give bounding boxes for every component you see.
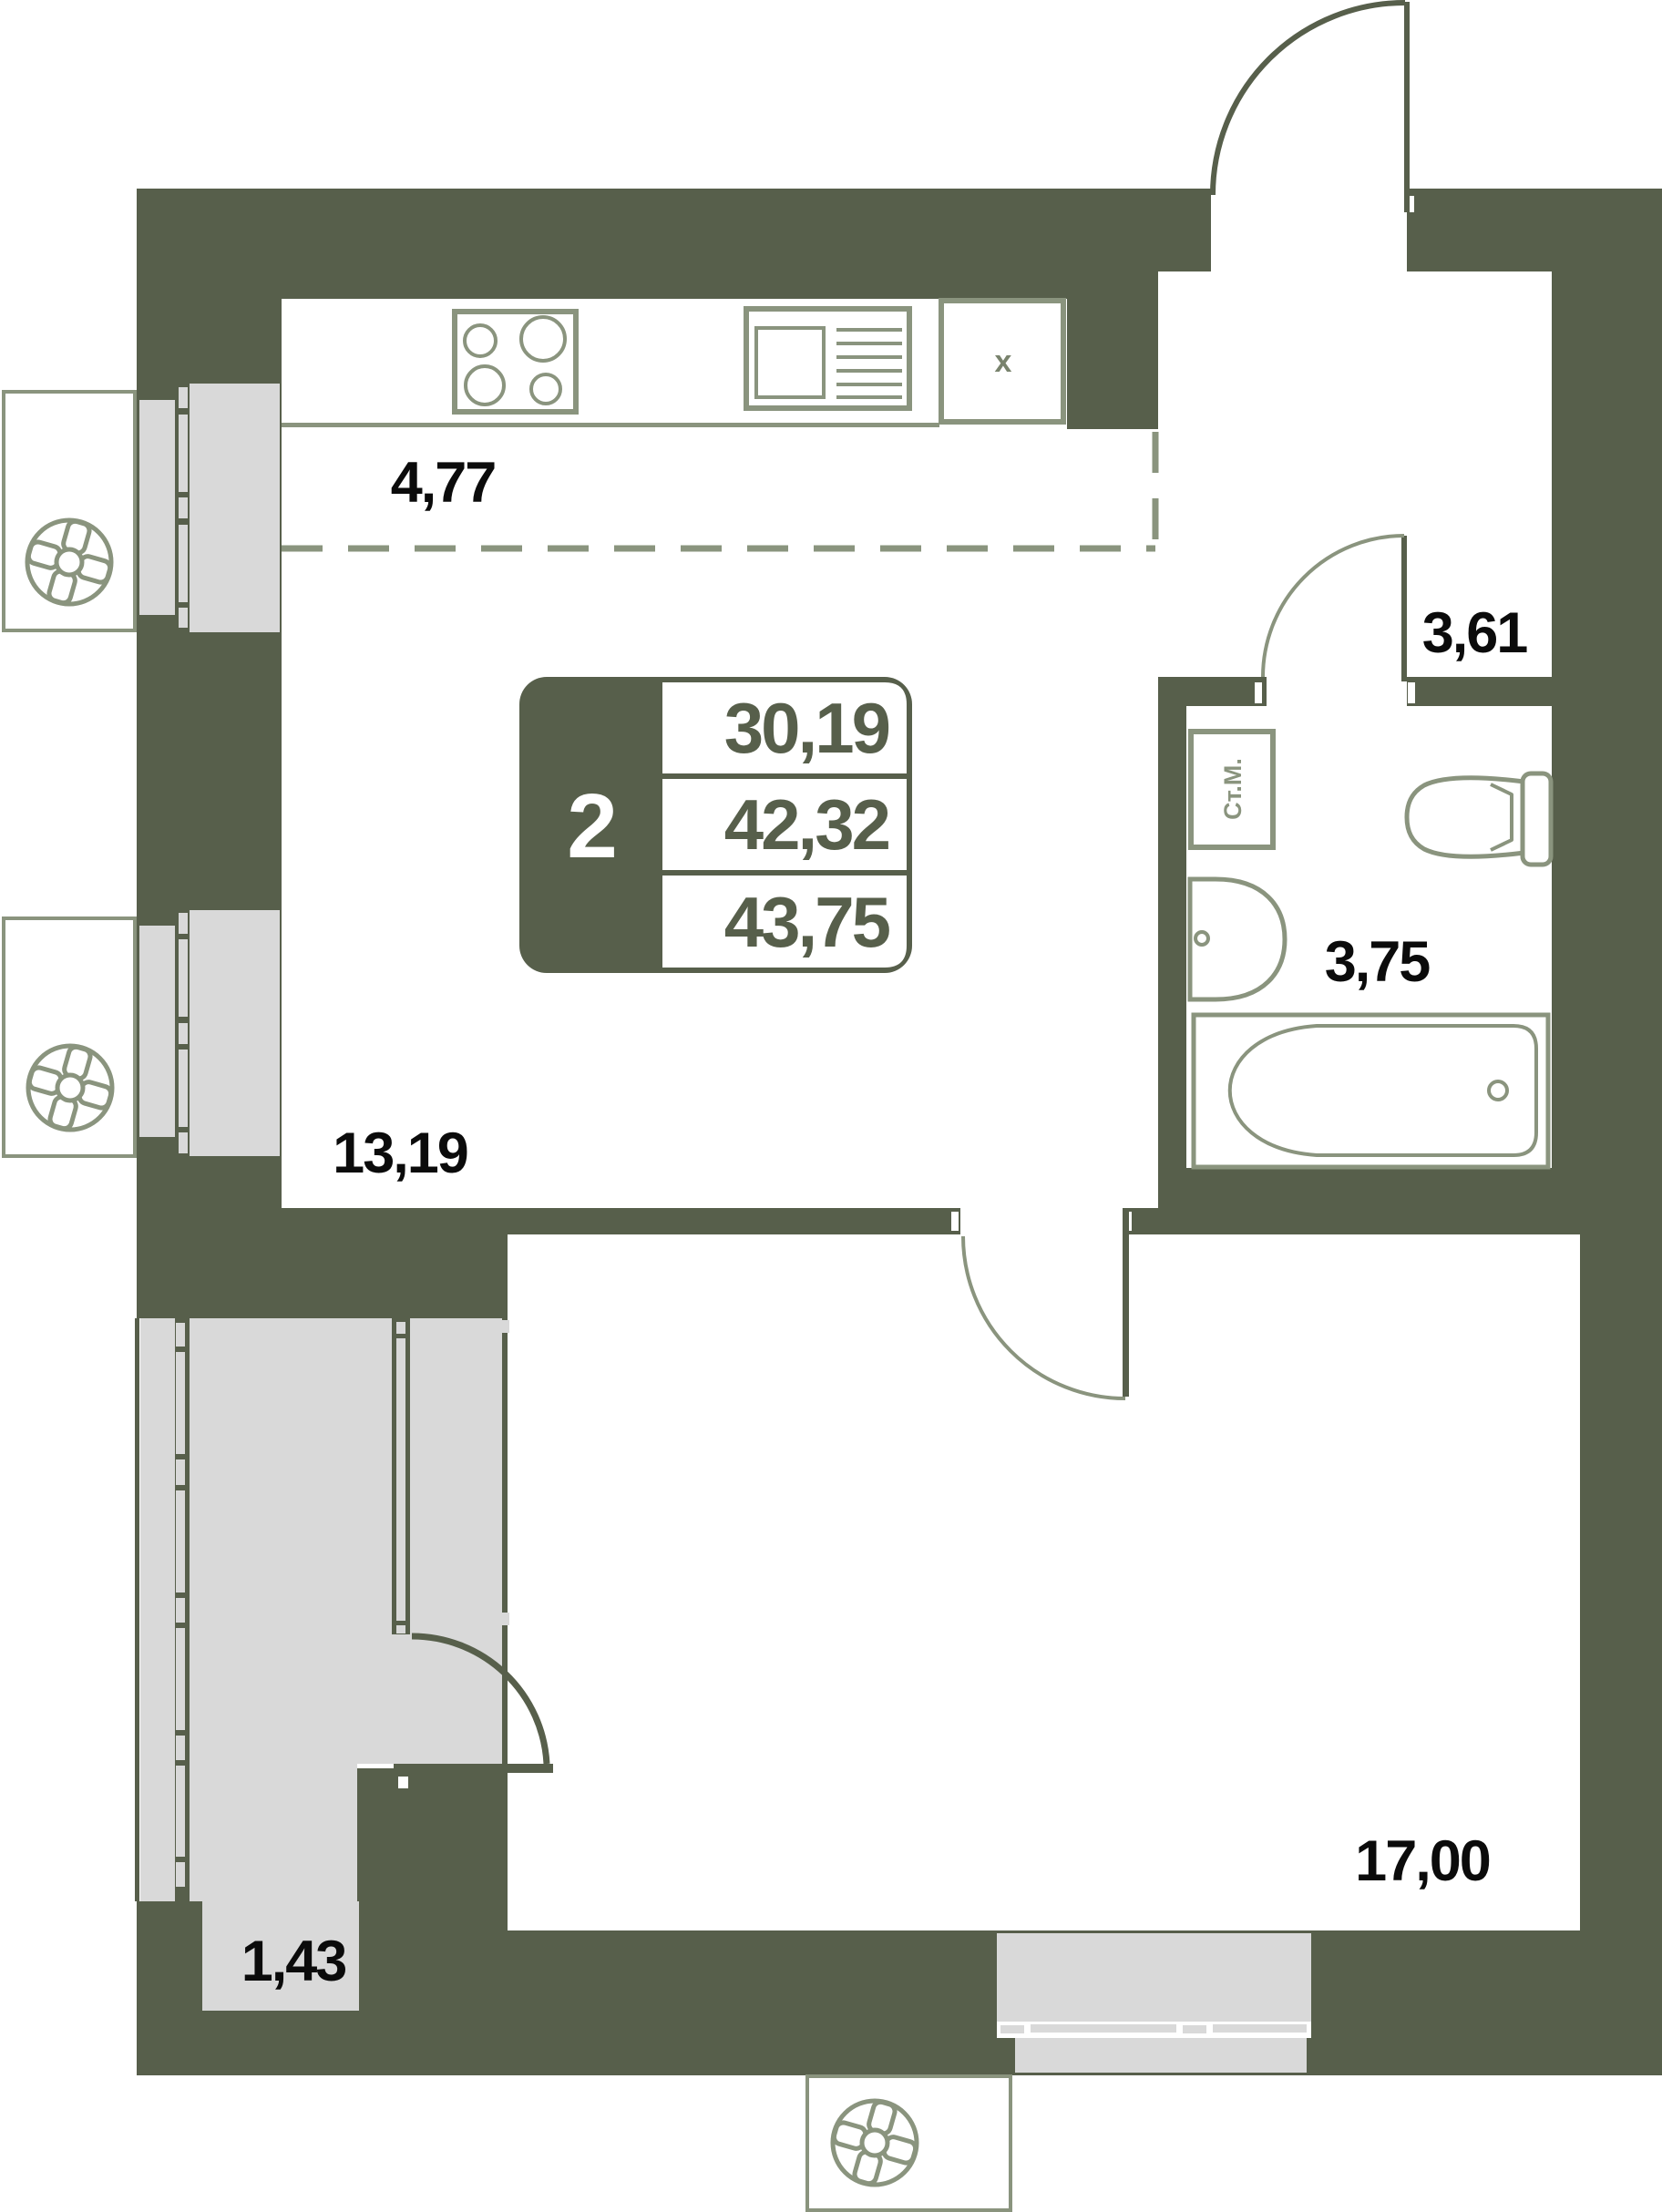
svg-text:2: 2 — [567, 775, 618, 877]
svg-text:43,75: 43,75 — [724, 882, 890, 962]
svg-text:13,19: 13,19 — [333, 1121, 467, 1185]
svg-text:17,00: 17,00 — [1355, 1829, 1490, 1893]
svg-text:3,75: 3,75 — [1325, 930, 1431, 994]
svg-text:30,19: 30,19 — [724, 688, 889, 768]
svg-text:x: x — [995, 344, 1012, 379]
svg-text:4,77: 4,77 — [391, 451, 496, 515]
svg-text:3,61: 3,61 — [1422, 601, 1528, 665]
svg-text:1,43: 1,43 — [241, 1930, 346, 1993]
svg-text:Ст.М.: Ст.М. — [1219, 758, 1246, 820]
svg-text:42,32: 42,32 — [724, 784, 889, 865]
